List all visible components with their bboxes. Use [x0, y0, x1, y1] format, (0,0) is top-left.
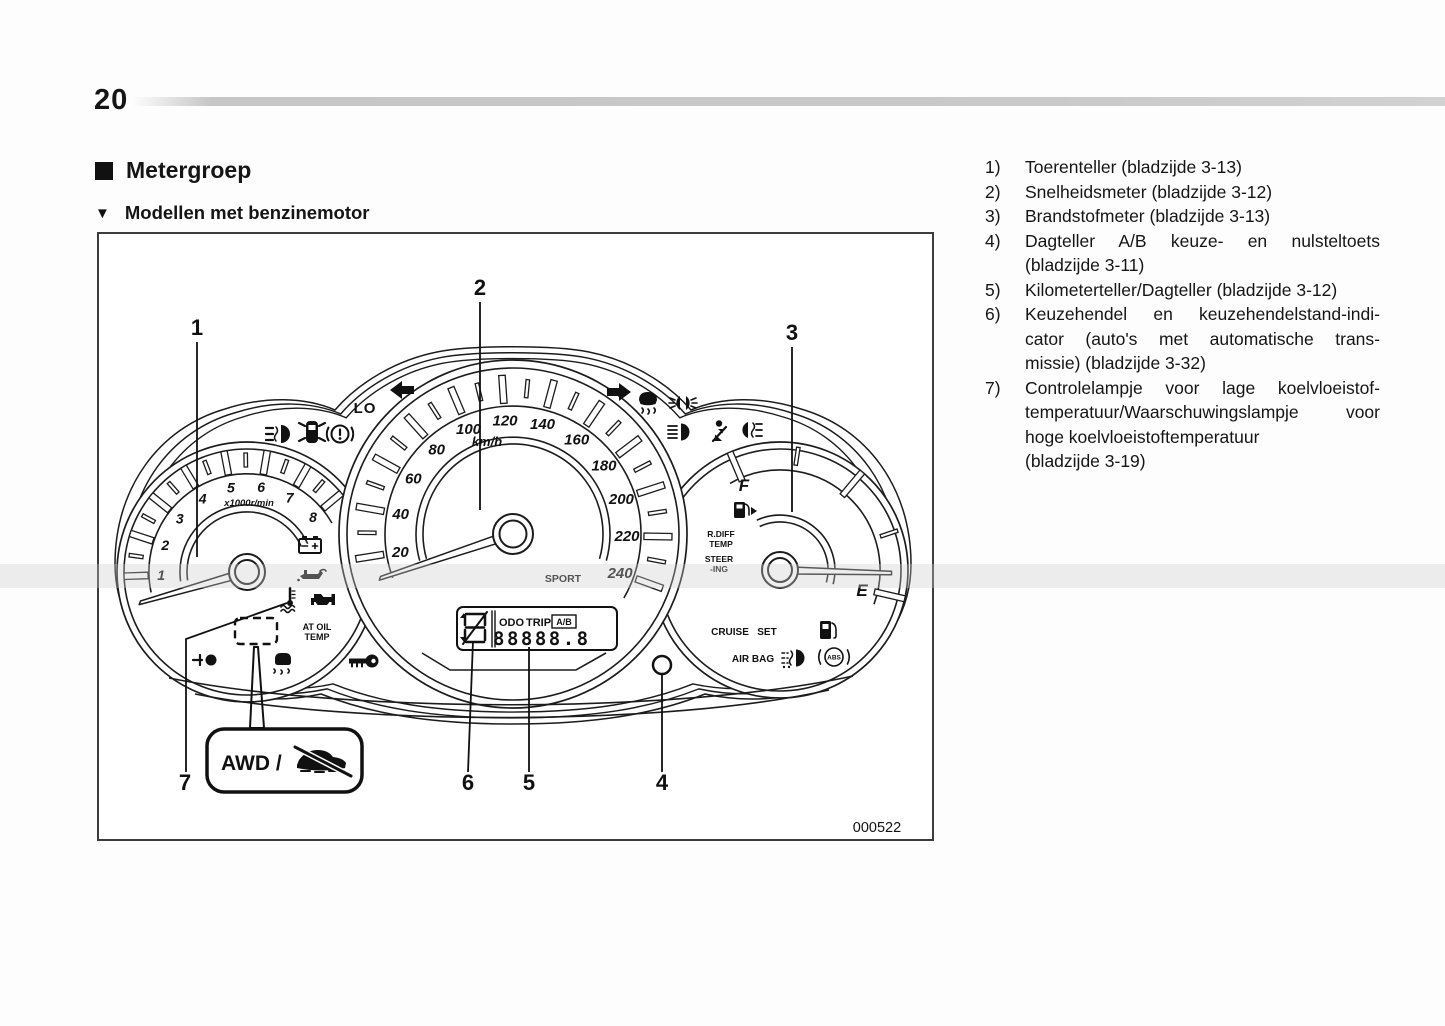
tachometer-label: 4 — [198, 490, 207, 506]
seatbelt-warning-icon — [713, 420, 727, 441]
tachometer-tick — [124, 572, 148, 579]
front-fog-light-icon — [266, 425, 290, 443]
subsection-heading: ▼ Modellen met benzinemotor — [95, 202, 370, 224]
fuel-empty-label: E — [856, 581, 868, 600]
fuel-full-label: F — [739, 476, 750, 495]
lo-gear-label: LO — [354, 400, 377, 417]
speedometer-tick — [358, 531, 376, 535]
page-number: 20 — [94, 84, 128, 117]
header-rule-bar — [132, 97, 1445, 106]
rear-fog-light-icon — [742, 422, 762, 438]
legend-item-line: Controlelampje voor lage koelvloeistof- — [1025, 376, 1380, 401]
legend-item-line: temperatuur/Waarschuwingslampje voor — [1025, 400, 1380, 425]
legend-item-text: Kilometerteller/Dagteller (bladzijde 3-1… — [1025, 278, 1380, 303]
legend-item-line: Kilometerteller/Dagteller (bladzijde 3-1… — [1025, 278, 1380, 303]
speedometer-label: 220 — [613, 528, 640, 545]
trip-reset-knob — [653, 656, 671, 674]
door-open-icon — [299, 421, 325, 443]
legend-item-number: 6) — [985, 302, 1025, 376]
speedometer-label: 180 — [591, 457, 617, 474]
legend-item-line: (bladzijde 3-19) — [1025, 449, 1380, 474]
tachometer-label: 1 — [157, 567, 165, 583]
sport-mode-label: SPORT — [545, 573, 582, 585]
triangle-bullet-icon: ▼ — [95, 205, 110, 222]
legend-item-text: Toerenteller (bladzijde 3-13) — [1025, 155, 1380, 180]
speedometer-tick — [499, 375, 507, 403]
speedometer-label: 80 — [428, 441, 445, 458]
legend-item: 7)Controlelampje voor lage koelvloeistof… — [985, 376, 1381, 474]
legend-item: 5)Kilometerteller/Dagteller (bladzijde 3… — [985, 278, 1381, 303]
tachometer-hub-inner — [235, 560, 259, 584]
legend-item: 6)Keuzehendel en keuzehendelstand-indi-c… — [985, 302, 1381, 376]
callout-6: 6 — [462, 770, 474, 795]
odometer-digits: 88888.8 — [493, 628, 591, 650]
legend-item-text: Controlelampje voor lage koelvloeistof-t… — [1025, 376, 1380, 474]
tachometer-label: 7 — [286, 489, 295, 505]
callout-2: 2 — [474, 275, 486, 300]
subsection-title: Modellen met benzinemotor — [125, 202, 370, 224]
legend-item-number: 2) — [985, 180, 1025, 205]
legend-item: 4)Dagteller A/B keuze- en nulsteltoets(b… — [985, 229, 1381, 278]
legend-item-number: 1) — [985, 155, 1025, 180]
at-oil-temp-label: AT OIL — [303, 622, 332, 632]
speedometer-label: 240 — [607, 565, 634, 582]
rdiff-temp-label-2: TEMP — [709, 539, 733, 549]
tachometer-tick — [244, 453, 248, 467]
cruise-label: CRUISE — [711, 627, 749, 638]
instrument-cluster-diagram: 12345678 x1000r/min AT OIL TEMP — [99, 234, 932, 839]
speedometer-label: 60 — [405, 471, 422, 488]
speedometer-label: 140 — [530, 416, 556, 433]
legend-item-text: Brandstofmeter (bladzijde 3-13) — [1025, 204, 1380, 229]
legend-item-line: Keuzehendel en keuzehendelstand-indi- — [1025, 302, 1380, 327]
tachometer-label: 3 — [176, 510, 184, 526]
rdiff-temp-label: R.DIFF — [707, 529, 734, 539]
position-light-icon — [669, 396, 697, 410]
legend-item-line: cator (auto's met automatische trans- — [1025, 327, 1380, 352]
abs-label: ABS — [827, 655, 841, 662]
square-bullet-icon — [95, 162, 113, 180]
tachometer-label: 2 — [160, 537, 169, 553]
trip-ab-label: A/B — [556, 617, 572, 627]
legend-item-number: 4) — [985, 229, 1025, 278]
tachometer-label: 6 — [257, 479, 265, 495]
figure-code: 000522 — [853, 820, 901, 836]
speedometer-label: 200 — [608, 491, 635, 508]
legend-item-text: Snelheidsmeter (bladzijde 3-12) — [1025, 180, 1380, 205]
awd-label: AWD / — [221, 752, 282, 775]
security-key-icon — [349, 655, 379, 668]
speedometer-label: 120 — [492, 412, 518, 429]
steering-label: STEER — [705, 554, 733, 564]
section-heading: Metergroep — [95, 157, 251, 184]
speedometer-label: 20 — [391, 544, 409, 561]
legend-item: 3)Brandstofmeter (bladzijde 3-13) — [985, 204, 1381, 229]
high-beam-icon — [668, 424, 690, 441]
callout-7: 7 — [179, 770, 191, 795]
legend-item-number: 3) — [985, 204, 1025, 229]
speedometer-label: 160 — [564, 432, 590, 449]
legend-item-line: Brandstofmeter (bladzijde 3-13) — [1025, 204, 1380, 229]
legend-item-line: missie) (bladzijde 3-32) — [1025, 351, 1380, 376]
legend-item-line: Snelheidsmeter (bladzijde 3-12) — [1025, 180, 1380, 205]
callout-1: 1 — [191, 315, 203, 340]
legend-item-line: Toerenteller (bladzijde 3-13) — [1025, 155, 1380, 180]
legend-item: 2)Snelheidsmeter (bladzijde 3-12) — [985, 180, 1381, 205]
steering-label-2: -ING — [710, 564, 728, 574]
speedometer-unit: km/h — [472, 434, 502, 449]
speedometer-tick — [644, 533, 672, 540]
callout-5: 5 — [523, 770, 535, 795]
legend-item-line: Dagteller A/B keuze- en nulsteltoets — [1025, 229, 1380, 254]
tachometer-label: 8 — [309, 509, 317, 525]
callout-4: 4 — [656, 770, 669, 795]
tachometer-label: 5 — [227, 480, 235, 496]
instrument-cluster-figure: 12345678 x1000r/min AT OIL TEMP — [97, 232, 934, 841]
speedometer-label: 40 — [391, 506, 409, 523]
vdc-indicator-icon — [639, 392, 657, 414]
legend-item-line: hoge koelvloeistoftemperatuur — [1025, 425, 1380, 450]
tachometer-unit: x1000r/min — [223, 498, 274, 509]
brake-warning-icon — [327, 426, 353, 443]
legend-list: 1)Toerenteller (bladzijde 3-13)2)Snelhei… — [985, 155, 1381, 474]
legend-item-text: Keuzehendel en keuzehendelstand-indi-cat… — [1025, 302, 1380, 376]
fuel-hub-inner — [768, 558, 792, 582]
legend-item-number: 5) — [985, 278, 1025, 303]
speedometer-hub-inner — [500, 521, 527, 548]
legend-item-number: 7) — [985, 376, 1025, 474]
section-title: Metergroep — [126, 157, 251, 184]
legend-item-line: (bladzijde 3-11) — [1025, 253, 1380, 278]
legend-item-text: Dagteller A/B keuze- en nulsteltoets(bla… — [1025, 229, 1380, 278]
legend-item: 1)Toerenteller (bladzijde 3-13) — [985, 155, 1381, 180]
set-label: SET — [757, 627, 776, 638]
callout-3: 3 — [786, 320, 798, 345]
at-oil-temp-label-2: TEMP — [304, 632, 329, 642]
airbag-label: AIR BAG — [732, 654, 774, 665]
